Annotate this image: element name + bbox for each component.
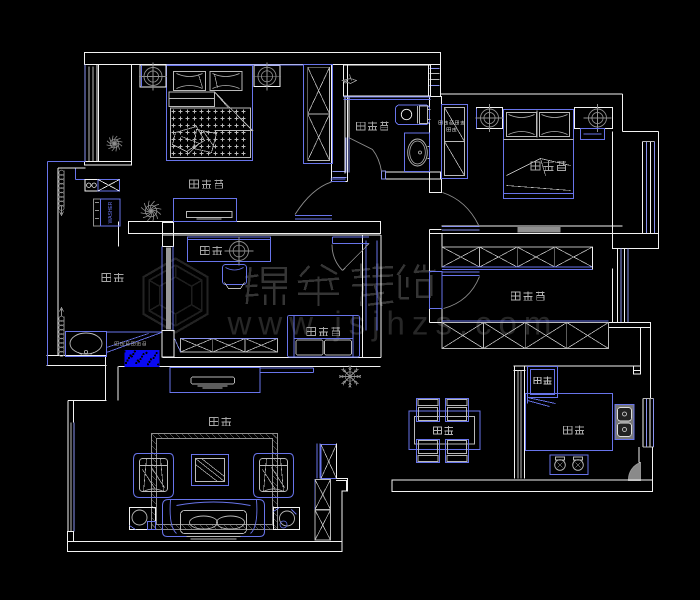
svg-text:WASHER: WASHER <box>108 201 114 223</box>
svg-text:www.jsjhzs.com: www.jsjhzs.com <box>227 305 559 342</box>
